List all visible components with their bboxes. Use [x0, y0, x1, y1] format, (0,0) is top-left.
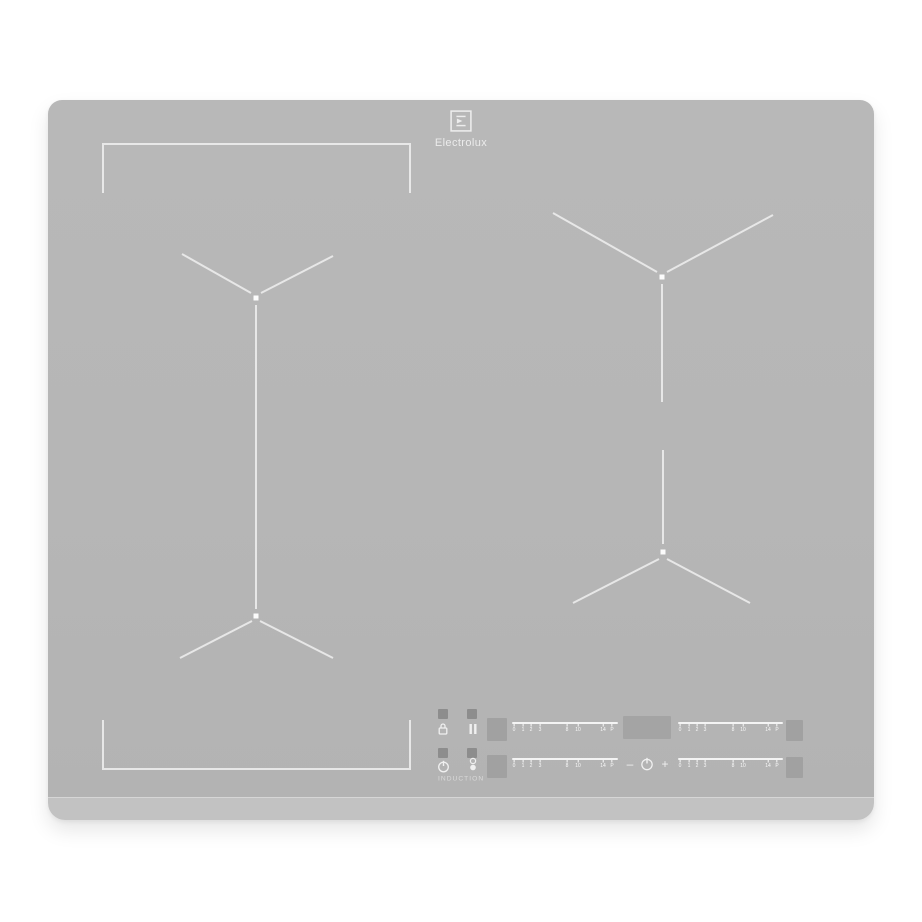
induction-label: INDUCTION	[438, 775, 484, 782]
hob-front-edge	[48, 797, 874, 820]
slider-tick: 10	[575, 724, 581, 733]
touch-pad-right-front[interactable]	[786, 757, 803, 778]
hob2hood-button[interactable]	[465, 756, 481, 772]
lock-icon	[437, 722, 449, 736]
slider-tick: 8	[566, 724, 569, 733]
slider-tick: 1	[687, 760, 690, 769]
slider-tick: 2	[530, 724, 533, 733]
pause-button[interactable]	[465, 721, 481, 737]
lock-indicator	[438, 709, 448, 719]
slider-tick: 10	[575, 760, 581, 769]
slider-tick: 0	[513, 724, 516, 733]
power-on-off-button[interactable]	[435, 758, 451, 774]
induction-hob: Electrolux	[48, 100, 874, 820]
plus-button[interactable]: +	[659, 758, 671, 770]
slider-tick: 0	[513, 760, 516, 769]
pause-icon	[468, 723, 478, 735]
minus-button[interactable]: –	[624, 758, 636, 770]
slider-tick: 8	[731, 724, 734, 733]
slider-tick: 2	[530, 760, 533, 769]
main-power-button[interactable]	[639, 756, 655, 772]
slider-tick: 1	[521, 724, 524, 733]
product-photo: Electrolux	[0, 0, 922, 922]
slider-tick: 8	[566, 760, 569, 769]
hob2hood-icon	[467, 757, 479, 772]
slider-tick: 8	[731, 760, 734, 769]
slider-tick: 10	[740, 724, 746, 733]
slider-tick: P	[775, 760, 778, 769]
power-icon	[640, 757, 654, 771]
power-slider-left-front[interactable]: 012381014P	[512, 756, 618, 772]
slider-tick: 3	[704, 760, 707, 769]
slider-tick: 1	[687, 724, 690, 733]
touch-pad-left-rear[interactable]	[487, 718, 507, 741]
power-indicator	[438, 748, 448, 758]
slider-tick: 2	[696, 724, 699, 733]
power-slider-left-rear[interactable]: 012381014P	[512, 720, 618, 736]
slider-tick: 14	[766, 760, 772, 769]
power-slider-right-front[interactable]: 012381014P	[678, 756, 783, 772]
slider-tick: 2	[696, 760, 699, 769]
timer-display	[623, 716, 671, 739]
slider-tick: 10	[740, 760, 746, 769]
touch-pad-right-rear[interactable]	[786, 720, 803, 741]
slider-tick: P	[775, 724, 778, 733]
slider-tick: 3	[704, 724, 707, 733]
slider-tick: 0	[679, 724, 682, 733]
slider-tick: 3	[538, 724, 541, 733]
slider-tick: P	[610, 760, 613, 769]
hob-surface: Electrolux	[48, 100, 874, 797]
touch-pad-left-front[interactable]	[487, 755, 507, 778]
power-slider-right-rear[interactable]: 012381014P	[678, 720, 783, 736]
control-panel: INDUCTION 012381014P 012381014P 01238101…	[48, 100, 874, 797]
pause-indicator	[467, 709, 477, 719]
slider-tick: 3	[538, 760, 541, 769]
power-icon	[437, 760, 450, 773]
slider-tick: 14	[600, 760, 606, 769]
slider-tick: 0	[679, 760, 682, 769]
slider-tick: 14	[766, 724, 772, 733]
slider-tick: 1	[521, 760, 524, 769]
slider-tick: 14	[600, 724, 606, 733]
slider-tick: P	[610, 724, 613, 733]
lock-button[interactable]	[435, 721, 451, 737]
